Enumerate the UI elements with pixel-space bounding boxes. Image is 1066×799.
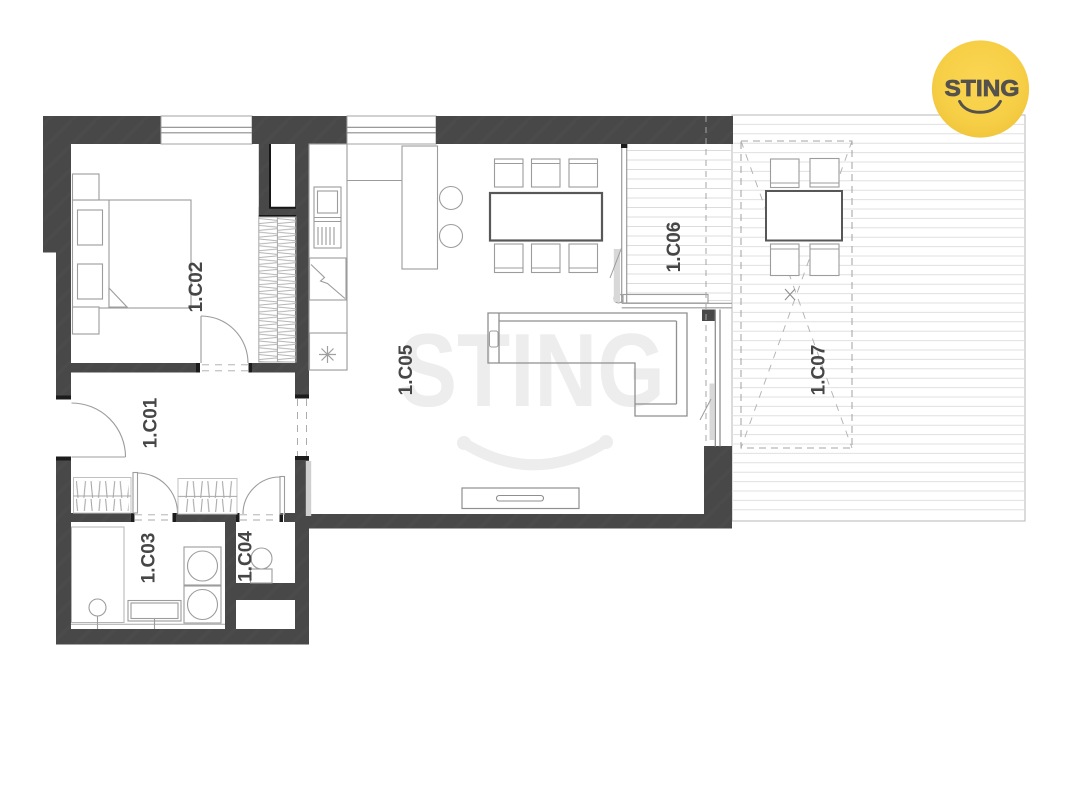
svg-text:1.C05: 1.C05 bbox=[396, 344, 417, 395]
svg-text:1.C06: 1.C06 bbox=[664, 222, 685, 273]
svg-text:1.C04: 1.C04 bbox=[236, 531, 257, 582]
svg-text:STING: STING bbox=[399, 313, 665, 429]
svg-text:1.C03: 1.C03 bbox=[139, 533, 160, 584]
svg-text:1.C02: 1.C02 bbox=[186, 262, 207, 313]
svg-text:STING: STING bbox=[945, 75, 1020, 101]
svg-text:1.C07: 1.C07 bbox=[809, 345, 830, 396]
svg-text:1.C01: 1.C01 bbox=[141, 397, 162, 448]
